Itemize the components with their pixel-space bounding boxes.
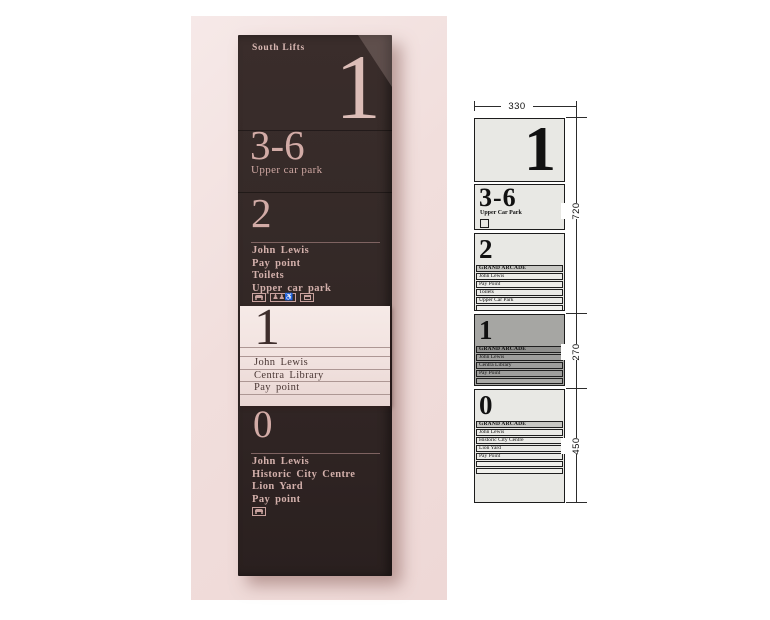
directory-item: Historic City Centre [252,469,384,482]
dim-label-lower-height: 450 [561,438,591,454]
range-level-number: 3-6 [250,123,305,167]
section-number: 1 [475,119,564,179]
dim-tick [474,101,475,111]
schematic-sign-panel: 1 3-6 Upper Car Park 2 GRAND ARCADE John… [474,118,565,503]
slat-row: Historic City Centre [476,437,563,444]
band-empty-slat [240,394,390,403]
directory-item: John Lewis [252,245,384,258]
band-item: Centra Library [240,369,390,382]
schematic-section-level2: 2 GRAND ARCADE John Lewis Pay Point Toil… [474,233,565,311]
dim-tick [566,502,587,503]
slide-in-level-panel: 1 John Lewis Centra Library Pay point [240,306,390,406]
level2-number: 2 [251,191,272,235]
slat-row: John Lewis [476,273,563,280]
sign-title: South Lifts [252,43,305,53]
section-number: 2 [475,234,564,264]
slat-row-empty [476,305,563,311]
schematic-section-level0: 0 GRAND ARCADE John Lewis Historic City … [474,389,565,503]
slat-row-empty [476,461,563,467]
slat-row: Lion Yard [476,445,563,452]
band-directory: John Lewis Centra Library Pay point [240,347,390,403]
dim-tick [566,388,587,389]
slat-row: Upper Car Park [476,297,563,304]
section-number: 1 [475,315,564,345]
directory-divider [251,453,380,454]
slat-row: Pay Point [476,453,563,460]
dim-label-width: 330 [501,100,533,112]
directory-item: Pay point [252,258,384,271]
level0-number: 0 [253,403,273,447]
dim-tick [576,101,577,111]
slat-row: GRAND ARCADE [476,346,563,353]
level0-directory: John Lewis Historic City Centre Lion Yar… [252,456,384,506]
band-empty-slat [240,347,390,356]
presentation-canvas: South Lifts 1 3-6 Upper car park 2 John … [0,0,770,620]
car-icon [252,507,266,516]
dim-label-middle-height: 270 [561,344,591,360]
slat-row: GRAND ARCADE [476,421,563,428]
dim-tick [566,313,587,314]
photo-panel: South Lifts 1 3-6 Upper car park 2 John … [191,16,447,600]
section-number: 0 [475,390,564,420]
slat-row: Toilets [476,289,563,296]
section-number: 3-6 [475,185,564,210]
slat-row: GRAND ARCADE [476,265,563,272]
section-sublabel: Upper Car Park [475,210,564,217]
bus-icon [300,293,314,302]
facility-icons-bottom [252,507,266,516]
directory-item: Pay point [252,494,384,507]
schematic-section-range: 3-6 Upper Car Park [474,184,565,230]
slat-row-empty [476,378,563,384]
directory-item: Lion Yard [252,481,384,494]
slat-row: Pay Point [476,281,563,288]
slat-row: Pay Point [476,370,563,377]
icon-placeholder-box [480,219,489,228]
top-level-number: 1 [335,29,381,147]
schematic-section-top: 1 [474,118,565,182]
range-level-label: Upper car park [251,164,323,176]
slat-row: John Lewis [476,429,563,436]
band-item: John Lewis [240,356,390,369]
slat-row-empty [476,468,563,474]
dim-label-upper-height: 720 [561,203,591,219]
directory-item: John Lewis [252,456,384,469]
directory-item: Toilets [252,270,384,283]
band-item: Pay point [240,381,390,394]
dim-tick [566,117,587,118]
slat-row: Centra Library [476,362,563,369]
directory-divider [251,242,380,243]
slat-row: John Lewis [476,354,563,361]
level2-directory: John Lewis Pay point Toilets Upper car p… [252,245,384,295]
schematic-section-level1-highlighted: 1 GRAND ARCADE John Lewis Centra Library… [474,314,565,386]
sign-board: South Lifts 1 3-6 Upper car park 2 John … [238,35,392,576]
